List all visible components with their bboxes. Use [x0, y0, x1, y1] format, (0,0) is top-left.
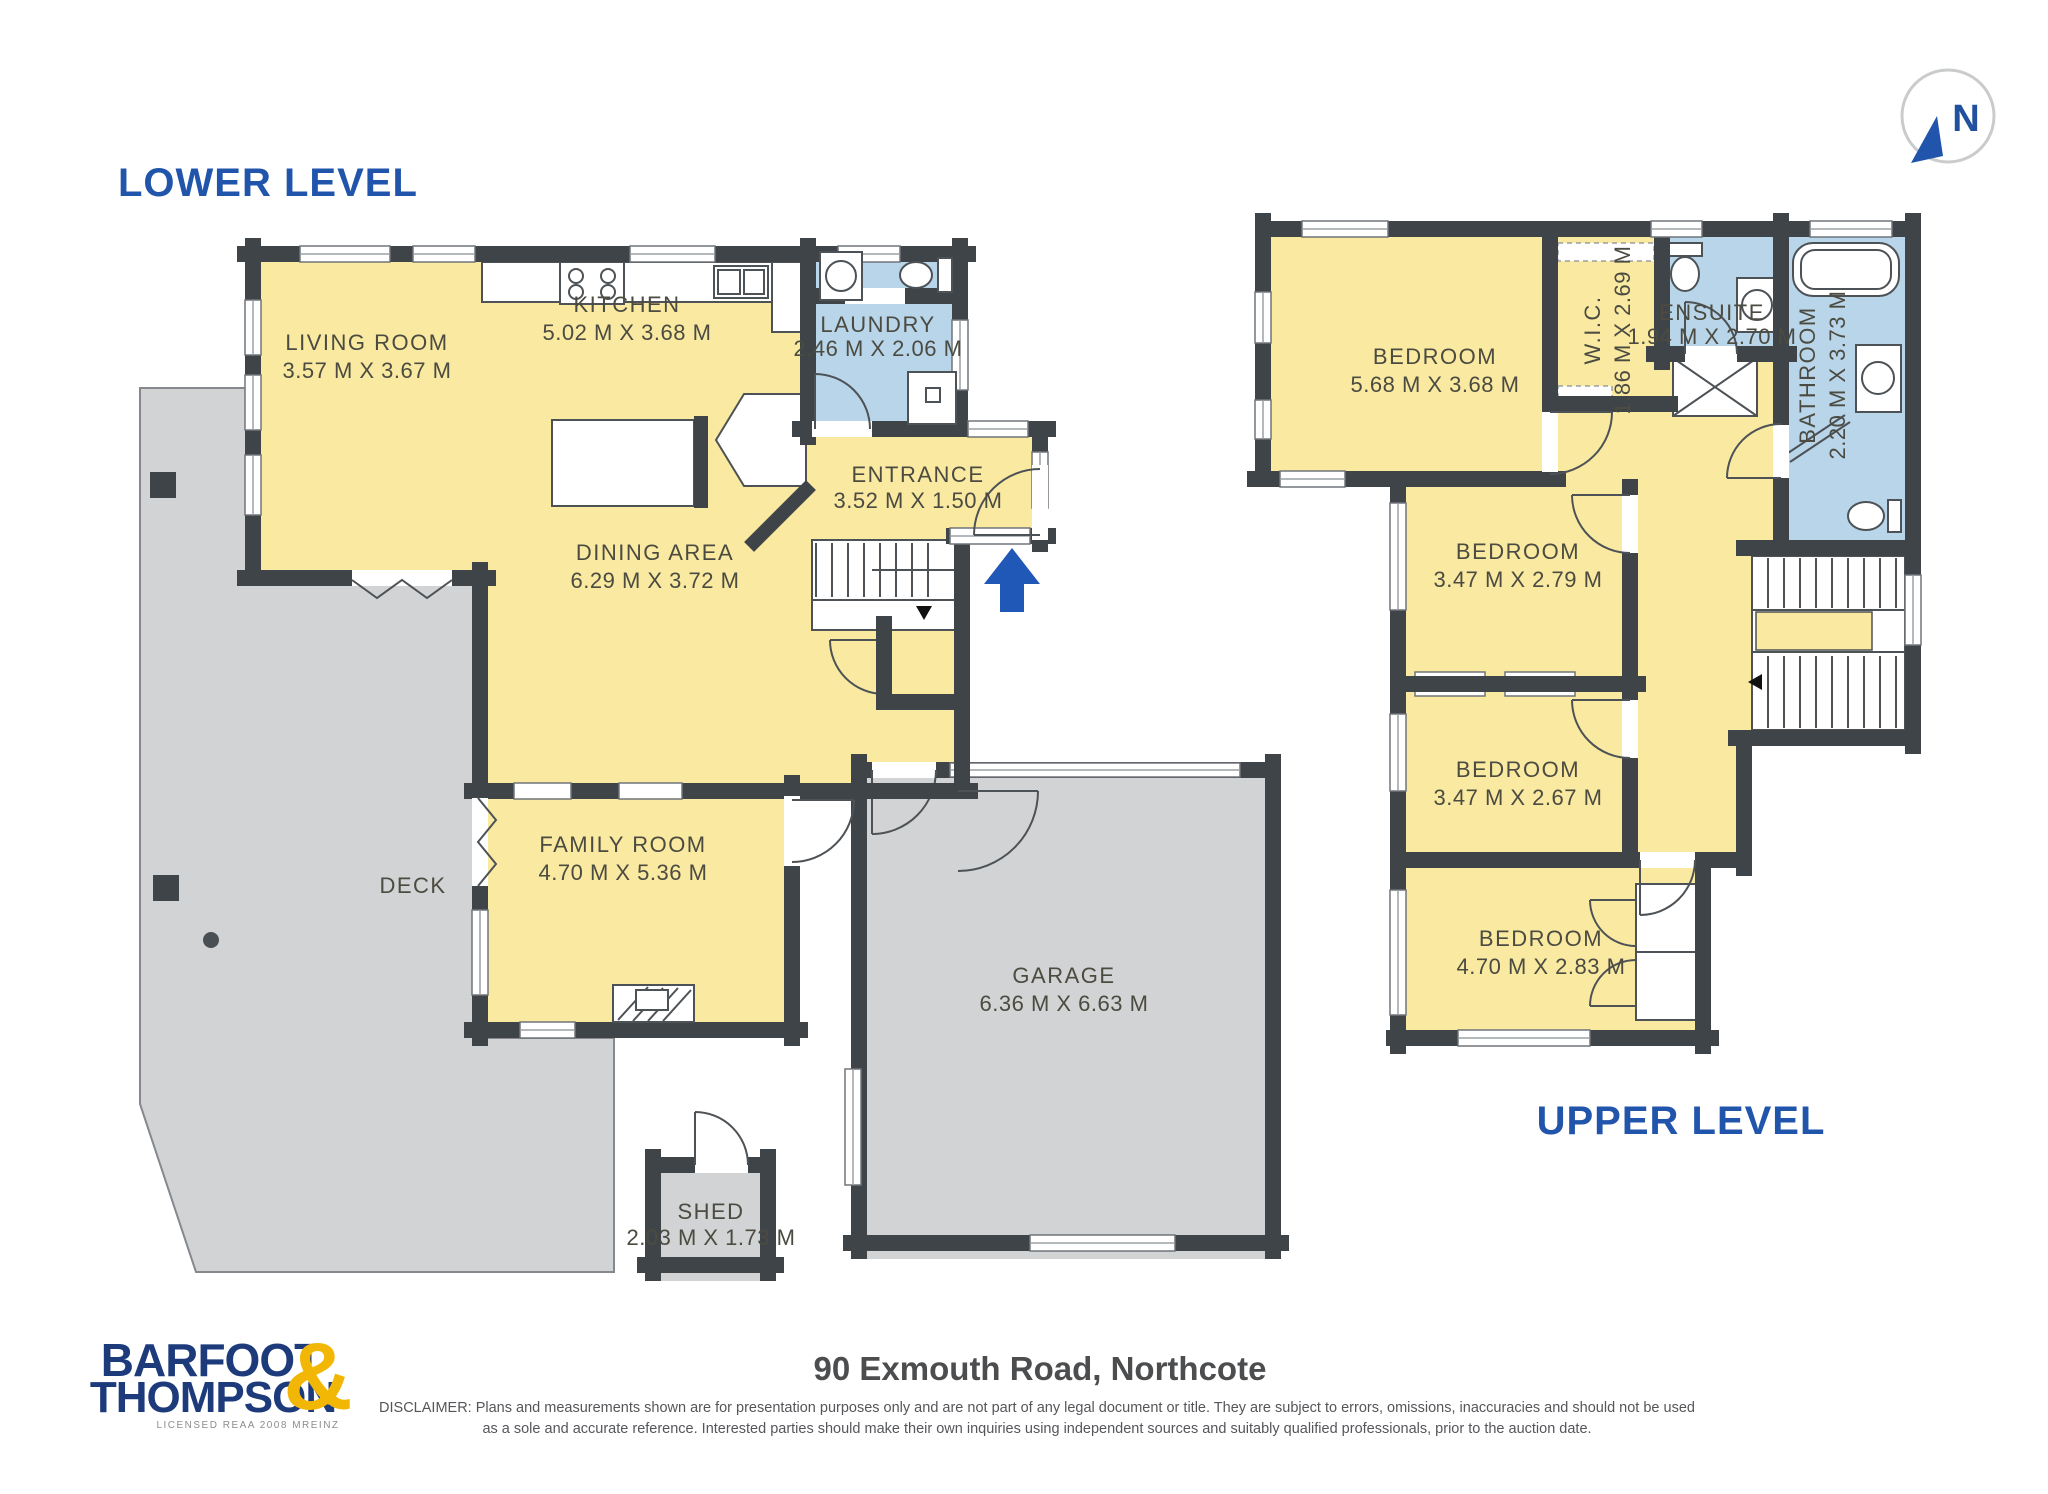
- bedroom2-label: BEDROOM: [1456, 539, 1580, 564]
- laundry-dims: 2.46 M X 2.06 M: [794, 336, 963, 361]
- kitchen-dims: 5.02 M X 3.68 M: [543, 320, 712, 345]
- bathroom-label: BATHROOM: [1795, 306, 1820, 443]
- deck-post: [153, 875, 179, 901]
- bedroom3-label: BEDROOM: [1456, 757, 1580, 782]
- logo-subtext: LICENSED REAA 2008 MREINZ: [156, 1420, 339, 1431]
- lower-level-title: LOWER LEVEL: [118, 161, 418, 205]
- address-title: 90 Exmouth Road, Northcote: [814, 1350, 1267, 1387]
- entrance-label: ENTRANCE: [851, 462, 984, 487]
- ensuite-label: ENSUITE: [1659, 300, 1765, 325]
- deck-dot: [203, 932, 219, 948]
- shed-door-gap: [695, 1157, 748, 1173]
- disclaimer-line2: as a sole and accurate reference. Intere…: [482, 1421, 1591, 1437]
- upper-level-plan: BEDROOM 5.68 M X 3.68 M W.I.C. 1.86 M X …: [1255, 221, 1921, 1046]
- living-room-label: LIVING ROOM: [285, 330, 448, 355]
- living-room-dims: 3.57 M X 3.67 M: [283, 358, 452, 383]
- toilet-bowl: [1671, 257, 1699, 291]
- wic-label: W.I.C.: [1580, 296, 1605, 365]
- bedroom3-dims: 3.47 M X 2.67 M: [1434, 785, 1603, 810]
- family-room-label: FAMILY ROOM: [539, 832, 706, 857]
- shower-box: [1673, 358, 1757, 416]
- ensuite-dims: 1.94 M X 2.70 M: [1628, 324, 1797, 349]
- upper-level-title: UPPER LEVEL: [1537, 1099, 1826, 1143]
- island-wall-stub: [694, 416, 708, 508]
- stairs-upper: [1748, 556, 1905, 730]
- dining-label: DINING AREA: [576, 540, 734, 565]
- fireplace: [613, 985, 694, 1022]
- north-indicator: N: [1902, 70, 1994, 163]
- lower-level-plan: LIVING ROOM 3.57 M X 3.67 M KITCHEN 5.02…: [140, 246, 1281, 1281]
- bedroom2-dims: 3.47 M X 2.79 M: [1434, 567, 1603, 592]
- toilet-tank: [1668, 243, 1702, 256]
- family-room-door: [792, 800, 854, 862]
- laundry-label: LAUNDRY: [820, 312, 935, 337]
- deck-post: [150, 472, 176, 498]
- cased-opening: [619, 783, 682, 799]
- garage-dims: 6.36 M X 6.63 M: [980, 991, 1149, 1016]
- bathroom-dims: 2.20 M X 3.73 M: [1825, 291, 1850, 460]
- toilet-tank: [1888, 500, 1901, 532]
- floor-plan-page: LIVING ROOM 3.57 M X 3.67 M KITCHEN 5.02…: [0, 0, 2048, 1494]
- shed-dims: 2.03 M X 1.73 M: [627, 1225, 796, 1250]
- deck-label: DECK: [379, 873, 446, 898]
- footer: BARFOOT THOMPSON & LICENSED REAA 2008 MR…: [90, 1323, 1695, 1437]
- laundry-tub: [908, 372, 956, 424]
- disclaimer-line1: DISCLAIMER: Plans and measurements shown…: [379, 1400, 1695, 1416]
- kitchen-label: KITCHEN: [573, 292, 680, 317]
- north-label: N: [1952, 98, 1979, 140]
- shed-structure: [645, 1112, 776, 1281]
- bedroom4-label: BEDROOM: [1479, 926, 1603, 951]
- entrance-dims: 3.52 M X 1.50 M: [834, 488, 1003, 513]
- family-room-dims: 4.70 M X 5.36 M: [539, 860, 708, 885]
- logo-ampersand-icon: &: [283, 1323, 352, 1430]
- shed-label: SHED: [677, 1199, 744, 1224]
- entry-arrow-icon: [984, 548, 1040, 612]
- toilet-tank: [938, 258, 952, 292]
- dining-dims: 6.29 M X 3.72 M: [571, 568, 740, 593]
- cased-opening: [514, 783, 571, 799]
- garage-entry-gap: [872, 762, 936, 778]
- bedroom1-dims: 5.68 M X 3.68 M: [1351, 372, 1520, 397]
- toilet-bowl: [1848, 502, 1884, 530]
- bedroom4-dims: 4.70 M X 2.83 M: [1457, 954, 1626, 979]
- garage-label: GARAGE: [1012, 963, 1115, 988]
- compass-circle: [1902, 70, 1994, 162]
- kitchen-island: [552, 420, 694, 506]
- toilet-bowl: [900, 262, 932, 288]
- bedroom1-label: BEDROOM: [1373, 344, 1497, 369]
- floor-plan-canvas: LIVING ROOM 3.57 M X 3.67 M KITCHEN 5.02…: [0, 0, 2048, 1494]
- stair-landing: [1756, 612, 1872, 650]
- store-room: [892, 634, 954, 694]
